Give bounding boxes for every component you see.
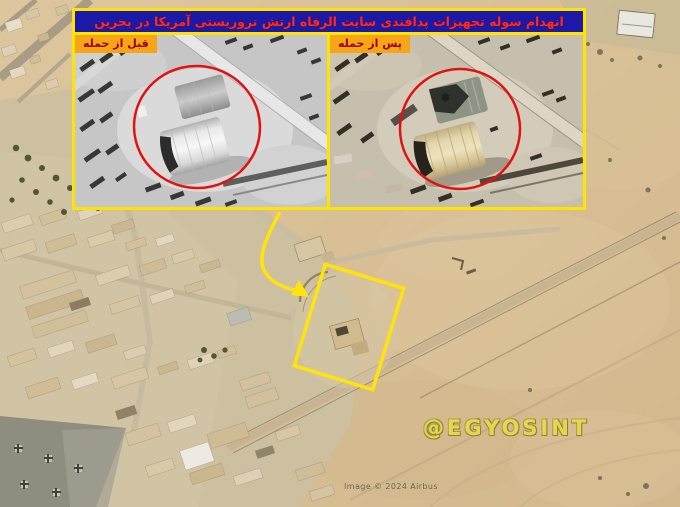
panel-title: انهدام سوله تجهیزات پدافندی سایت الرفاه …	[75, 11, 583, 35]
after-scene	[330, 35, 583, 207]
before-label: قبل از حمله	[75, 35, 157, 53]
watermark: @EGYOSINT	[423, 416, 589, 440]
panel-images: قبل از حمله	[75, 35, 583, 207]
after-image: پس از حمله	[330, 35, 583, 207]
imagery-attribution: Image © 2024 Airbus	[344, 482, 438, 491]
before-scene	[75, 35, 327, 207]
before-image: قبل از حمله	[75, 35, 327, 207]
after-label: پس از حمله	[330, 35, 410, 53]
before-after-panel: انهدام سوله تجهیزات پدافندی سایت الرفاه …	[72, 8, 586, 210]
annotated-satellite-image: انهدام سوله تجهیزات پدافندی سایت الرفاه …	[0, 0, 680, 507]
